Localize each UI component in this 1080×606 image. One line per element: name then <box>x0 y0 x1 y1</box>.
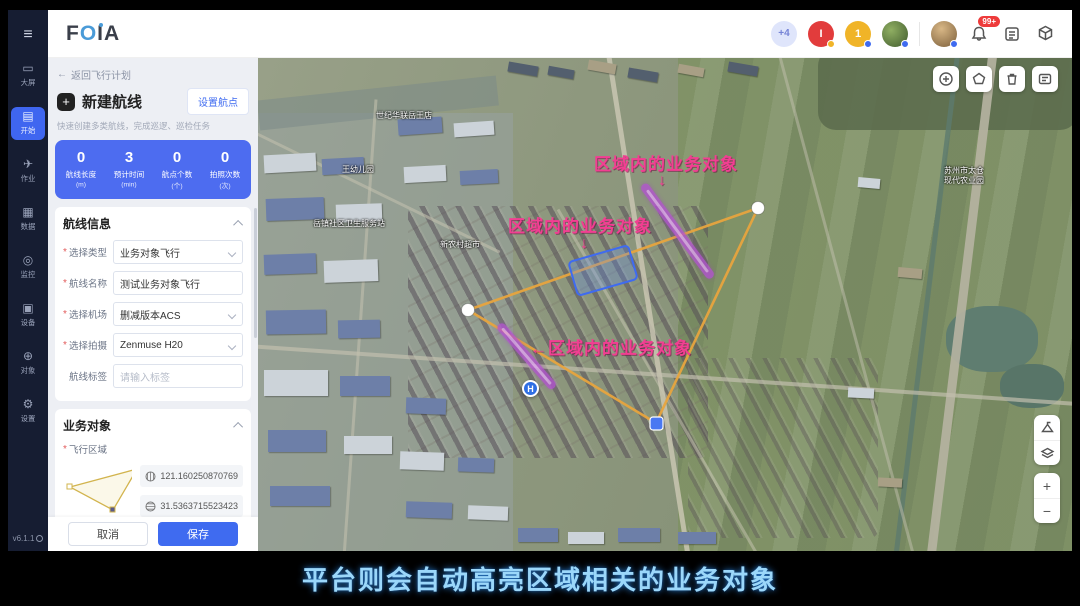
sidebar-item-label: 开始 <box>21 125 36 135</box>
select-value: Zenmuse H20 <box>120 340 183 351</box>
collapse-chevron-icon[interactable] <box>233 220 243 230</box>
terrain-patch <box>324 259 379 283</box>
map-toolbar <box>933 66 1058 92</box>
terrain-patch <box>270 486 330 506</box>
terrain-patch <box>266 309 326 334</box>
helipad-marker[interactable]: H <box>522 380 539 397</box>
field-label: 选择拍摄 <box>69 338 113 352</box>
hamburger-menu-icon[interactable]: ≡ <box>23 26 32 44</box>
trash-icon <box>1004 71 1020 87</box>
annotation-label: ←区域内的业务对象 <box>530 334 692 359</box>
objects-icon: ⊕ <box>23 350 33 363</box>
panel-footer: 取消 保存 <box>48 517 258 551</box>
field-label: 选择机场 <box>69 307 113 321</box>
route-stats-card: 0 航线长度 (m) 3 预计时间 (min) 0 航点 <box>55 140 251 199</box>
map-canvas[interactable]: 区域内的业务对象 ↓ 区域内的业务对象 ↓ ←区域内的业务对象 H 世纪华联岳王… <box>258 58 1072 551</box>
status-dot <box>864 40 872 48</box>
measure-icon <box>1040 420 1055 435</box>
field-label: 航线标签 <box>69 369 113 383</box>
page-title: 新建航线 <box>82 91 142 112</box>
status-dot <box>901 40 909 48</box>
app-version: v6.1.1 <box>13 534 44 543</box>
notification-badge: 99+ <box>978 16 1000 27</box>
avatar[interactable] <box>882 21 908 47</box>
header-divider <box>919 22 920 46</box>
screen-icon: ▭ <box>22 62 33 75</box>
latitude-value: 31.5363715523423 <box>160 501 238 511</box>
subtitle-caption: 平台则会自动高亮区域相关的业务对象 <box>302 560 778 597</box>
nav-rail: ≡ ▭ 大屏 ▤ 开始 ✈ 作业 ▦ 数据 ◎ 监控 ▣ <box>8 10 48 551</box>
sidebar-item-settings[interactable]: ⚙ 设置 <box>11 395 45 428</box>
screen: ≡ ▭ 大屏 ▤ 开始 ✈ 作业 ▦ 数据 ◎ 监控 ▣ <box>0 0 1080 606</box>
map-zoom-controls: + − <box>1034 415 1060 523</box>
sidebar-item-label: 监控 <box>21 269 36 279</box>
sidebar-item-start[interactable]: ▤ 开始 <box>11 107 45 140</box>
app-window: ≡ ▭ 大屏 ▤ 开始 ✈ 作业 ▦ 数据 ◎ 监控 ▣ <box>8 10 1072 551</box>
logo-letter: F <box>66 22 80 46</box>
route-editor-panel: ← 返回飞行计划 + 新建航线 设置航点 快速创建多类航线，完成巡逻、巡检任务 … <box>48 58 258 551</box>
page-subtitle: 快速创建多类航线，完成巡逻、巡检任务 <box>55 115 251 140</box>
draw-polygon-button[interactable] <box>966 66 992 92</box>
logo-letter: O <box>80 22 97 46</box>
set-waypoints-button[interactable]: 设置航点 <box>187 88 249 115</box>
avatar[interactable]: I <box>808 21 834 47</box>
flight-area-sketch <box>63 460 132 517</box>
polygon-icon <box>971 71 987 87</box>
notes-icon[interactable] <box>1001 23 1023 45</box>
notifications-bell-icon[interactable]: 99+ <box>968 23 990 45</box>
layers-button[interactable] <box>1034 440 1060 465</box>
card-title: 业务对象 <box>63 417 111 434</box>
collapse-chevron-icon[interactable] <box>233 422 243 432</box>
terrain-patch <box>678 532 716 544</box>
longitude-globe-icon <box>145 471 156 482</box>
terrain-patch <box>898 267 923 279</box>
back-arrow-icon: ← <box>57 69 67 80</box>
route-type-select[interactable]: 业务对象飞行 <box>113 240 243 264</box>
terrain-patch <box>454 121 495 138</box>
waypoint-list-button[interactable] <box>1032 66 1058 92</box>
measure-tool-button[interactable] <box>1034 415 1060 440</box>
panel-scrollbar[interactable] <box>254 208 257 338</box>
longitude-chip: 121.160250870769 <box>140 465 243 487</box>
start-icon: ▤ <box>22 110 33 123</box>
annotation-arrow-icon: ↓ <box>580 235 588 253</box>
annotation-label: 区域内的业务对象 <box>594 150 738 175</box>
terrain-patch <box>406 501 453 519</box>
sidebar-item-label: 对象 <box>21 365 36 375</box>
airport-select[interactable]: 删减版本ACS <box>113 302 243 326</box>
business-object-card: 业务对象 * 飞行区域 <box>55 409 251 517</box>
terrain-patch <box>468 505 508 520</box>
map-place-label: 王幼儿园 <box>342 164 374 175</box>
video-caption-bar: 平台则会自动高亮区域相关的业务对象 <box>0 551 1080 606</box>
terrain-patch <box>627 67 658 82</box>
input-placeholder: 请输入标签 <box>120 369 170 384</box>
cancel-button[interactable]: 取消 <box>68 522 148 546</box>
sidebar-item-objects[interactable]: ⊕ 对象 <box>11 347 45 380</box>
card-title: 航线信息 <box>63 215 111 232</box>
avatar[interactable]: 1 <box>845 21 871 47</box>
terrain-patch <box>507 61 538 76</box>
cube-apps-icon[interactable] <box>1034 23 1056 45</box>
map-place-label: 岳镇社区卫生服务站 <box>313 218 385 229</box>
status-dot <box>950 40 958 48</box>
plus-icon: + <box>57 93 75 111</box>
camera-select[interactable]: Zenmuse H20 <box>113 333 243 357</box>
device-icon: ▣ <box>22 302 33 315</box>
terrain-patch <box>406 397 447 414</box>
terrain-patch <box>338 320 380 339</box>
terrain-patch <box>458 457 494 472</box>
input-value: 测试业务对象飞行 <box>120 276 200 291</box>
save-button[interactable]: 保存 <box>158 522 238 546</box>
select-value: 删减版本ACS <box>120 307 181 322</box>
stat-photo-count: 0 拍照次数 (次) <box>201 149 249 191</box>
select-value: 业务对象飞行 <box>120 245 180 260</box>
settings-icon: ⚙ <box>23 398 34 411</box>
data-icon: ▦ <box>22 206 33 219</box>
list-panel-icon <box>1037 71 1053 87</box>
terrain-patch <box>340 376 390 396</box>
back-link[interactable]: ← 返回飞行计划 <box>55 65 251 88</box>
route-info-card: 航线信息 * 选择类型 业务对象飞行 * 航线名称 测 <box>55 207 251 401</box>
map-place-label: 世纪华联岳王店 <box>376 110 432 121</box>
layers-icon <box>1040 446 1055 461</box>
avatar-overflow-chip[interactable]: +4 <box>771 21 797 47</box>
terrain-patch <box>568 532 604 544</box>
terrain-patch <box>848 387 874 398</box>
terrain-patch <box>518 528 558 542</box>
sidebar-item-label: 设置 <box>21 413 36 423</box>
delete-button[interactable] <box>999 66 1025 92</box>
terrain-patch <box>264 153 317 174</box>
avatar-initial: I <box>819 28 822 40</box>
terrain-patch <box>344 436 392 454</box>
terrain-patch <box>268 430 326 452</box>
logo-letter: I <box>97 22 104 46</box>
logo-letter: A <box>104 22 120 46</box>
field-label: 飞行区域 <box>69 442 113 456</box>
sidebar-item-data[interactable]: ▦ 数据 <box>11 203 45 236</box>
zoom-out-button[interactable]: − <box>1034 498 1060 523</box>
terrain-patch <box>858 177 881 189</box>
avatar-initial: 1 <box>855 28 861 40</box>
user-avatar[interactable] <box>931 21 957 47</box>
version-icon <box>36 535 43 542</box>
route-name-input[interactable]: 测试业务对象飞行 <box>113 271 243 295</box>
terrain-patch <box>404 165 447 183</box>
terrain-patch <box>618 528 660 542</box>
stat-est-time: 3 预计时间 (min) <box>105 149 153 191</box>
zoom-in-button[interactable]: + <box>1034 473 1060 498</box>
sidebar-item-device[interactable]: ▣ 设备 <box>11 299 45 332</box>
terrain-patch <box>547 66 574 79</box>
top-header: FOIA +4 I 1 99+ <box>48 10 1072 58</box>
back-label: 返回飞行计划 <box>71 67 131 82</box>
stat-waypoint-count: 0 航点个数 (个) <box>153 149 201 191</box>
field-label: 选择类型 <box>69 245 113 259</box>
app-logo: FOIA <box>66 22 120 46</box>
latitude-globe-icon <box>145 501 156 512</box>
terrain-patch <box>878 477 902 487</box>
terrain-patch <box>400 451 445 471</box>
sidebar-item-jobs[interactable]: ✈ 作业 <box>11 155 45 188</box>
monitor-icon: ◎ <box>23 254 33 267</box>
sidebar-item-label: 设备 <box>21 317 36 327</box>
jobs-icon: ✈ <box>23 158 33 171</box>
sidebar-item-label: 作业 <box>21 173 36 183</box>
map-place-label: 新农村超市 <box>440 239 480 250</box>
sidebar-item-label: 大屏 <box>21 77 36 87</box>
route-tag-input[interactable]: 请输入标签 <box>113 364 243 388</box>
latitude-chip: 31.5363715523423 <box>140 495 243 517</box>
sidebar-item-label: 数据 <box>21 221 36 231</box>
longitude-value: 121.160250870769 <box>160 471 238 481</box>
plus-circle-icon <box>938 71 954 87</box>
map-place-label: 苏州市太仓现代农业园 <box>944 166 988 186</box>
terrain-patch <box>264 253 317 275</box>
terrain-patch <box>264 370 328 396</box>
sidebar-item-screen[interactable]: ▭ 大屏 <box>11 59 45 92</box>
status-dot <box>827 40 835 48</box>
annotation-label: 区域内的业务对象 <box>508 212 652 237</box>
add-waypoint-button[interactable] <box>933 66 959 92</box>
terrain-patch <box>460 169 499 185</box>
field-label: 航线名称 <box>69 276 113 290</box>
stat-route-length: 0 航线长度 (m) <box>57 149 105 191</box>
sidebar-item-monitor[interactable]: ◎ 监控 <box>11 251 45 284</box>
annotation-arrow-icon: ↓ <box>658 172 666 190</box>
